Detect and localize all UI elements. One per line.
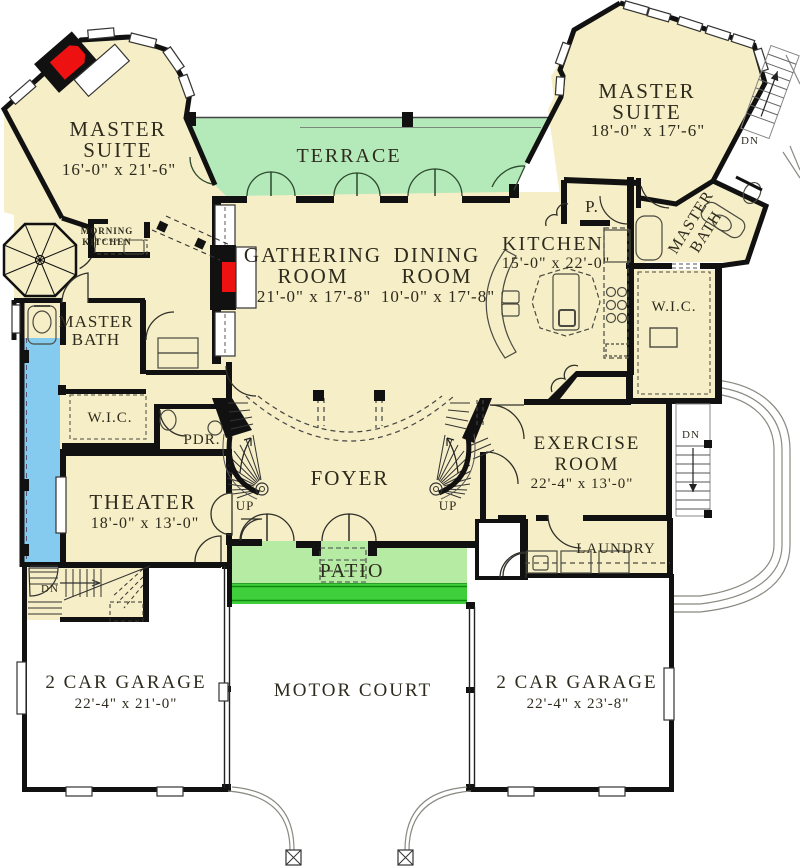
svg-text:MOTOR COURT: MOTOR COURT: [274, 680, 432, 701]
svg-text:10'-0" x 17'-8": 10'-0" x 17'-8": [381, 287, 495, 306]
svg-text:W.I.C.: W.I.C.: [651, 299, 696, 315]
svg-text:16'-0" x 21'-6": 16'-0" x 21'-6": [62, 160, 176, 179]
svg-text:2 CAR GARAGE: 2 CAR GARAGE: [496, 672, 657, 693]
svg-text:MORNING: MORNING: [81, 226, 134, 236]
svg-text:PATIO: PATIO: [320, 560, 385, 582]
svg-text:W.I.C.: W.I.C.: [87, 410, 132, 426]
svg-text:ROOM: ROOM: [277, 264, 348, 288]
svg-text:SUITE: SUITE: [83, 138, 153, 162]
svg-text:MASTER: MASTER: [59, 312, 134, 331]
svg-text:18'-0" x 17'-6": 18'-0" x 17'-6": [591, 121, 705, 140]
svg-text:ROOM: ROOM: [554, 454, 619, 475]
svg-text:P.: P.: [585, 197, 599, 216]
svg-text:PDR.: PDR.: [184, 432, 221, 448]
svg-text:DN: DN: [682, 429, 700, 441]
svg-text:TERRACE: TERRACE: [296, 145, 401, 167]
svg-text:18'-0" x 13'-0": 18'-0" x 13'-0": [91, 515, 199, 532]
svg-text:2 CAR GARAGE: 2 CAR GARAGE: [45, 672, 206, 693]
svg-text:DN: DN: [41, 583, 59, 595]
svg-text:15'-0" x 22'-0": 15'-0" x 22'-0": [502, 255, 610, 272]
svg-text:22'-4" x 21'-0": 22'-4" x 21'-0": [75, 696, 178, 712]
svg-text:DN: DN: [741, 135, 759, 147]
svg-text:FOYER: FOYER: [311, 466, 390, 490]
svg-text:LAUNDRY: LAUNDRY: [576, 541, 656, 557]
svg-text:ROOM: ROOM: [401, 264, 472, 288]
svg-text:KITCHEN: KITCHEN: [502, 233, 604, 255]
svg-text:BATH: BATH: [72, 330, 120, 349]
svg-text:22'-4" x 23'-8": 22'-4" x 23'-8": [527, 696, 630, 712]
svg-text:KITCHEN: KITCHEN: [82, 237, 132, 247]
svg-text:UP: UP: [439, 498, 458, 513]
svg-text:UP: UP: [236, 498, 255, 513]
svg-text:EXERCISE: EXERCISE: [534, 433, 641, 454]
svg-text:21'-0" x 17'-8": 21'-0" x 17'-8": [257, 287, 371, 306]
svg-text:THEATER: THEATER: [89, 490, 196, 514]
svg-text:22'-4" x 13'-0": 22'-4" x 13'-0": [531, 476, 634, 492]
